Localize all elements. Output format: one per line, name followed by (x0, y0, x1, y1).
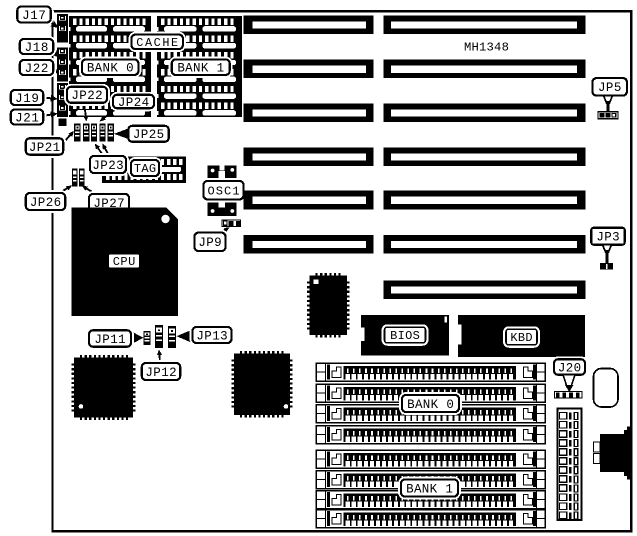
svg-text:BANK 0: BANK 0 (407, 398, 454, 412)
svg-text:JP12: JP12 (145, 366, 177, 380)
svg-text:JP25: JP25 (133, 128, 165, 142)
svg-text:JP13: JP13 (196, 329, 228, 343)
svg-text:JP22: JP22 (71, 89, 103, 103)
svg-text:J22: J22 (25, 62, 49, 76)
svg-text:BANK 1: BANK 1 (177, 61, 224, 75)
svg-text:JP26: JP26 (30, 196, 62, 210)
svg-text:OSC1: OSC1 (207, 184, 240, 198)
svg-text:JP3: JP3 (596, 230, 620, 244)
svg-text:CPU: CPU (113, 255, 136, 269)
svg-text:JP24: JP24 (118, 96, 150, 110)
svg-text:BANK 0: BANK 0 (87, 61, 134, 75)
svg-text:JP5: JP5 (598, 81, 622, 95)
svg-text:BANK 1: BANK 1 (406, 482, 453, 496)
svg-text:J19: J19 (15, 92, 39, 106)
svg-text:JP9: JP9 (198, 236, 222, 250)
svg-text:J20: J20 (558, 361, 582, 375)
svg-text:JP21: JP21 (29, 141, 61, 155)
svg-text:JP23: JP23 (92, 159, 124, 173)
svg-text:CACHE: CACHE (136, 36, 179, 50)
svg-text:BIOS: BIOS (390, 329, 420, 343)
svg-text:TAG: TAG (134, 162, 157, 176)
svg-text:J18: J18 (25, 41, 49, 55)
svg-text:J17: J17 (22, 9, 46, 23)
svg-text:JP11: JP11 (94, 333, 126, 347)
svg-text:MH1348: MH1348 (464, 41, 509, 55)
svg-text:J21: J21 (15, 111, 39, 125)
svg-text:KBD: KBD (510, 331, 533, 345)
